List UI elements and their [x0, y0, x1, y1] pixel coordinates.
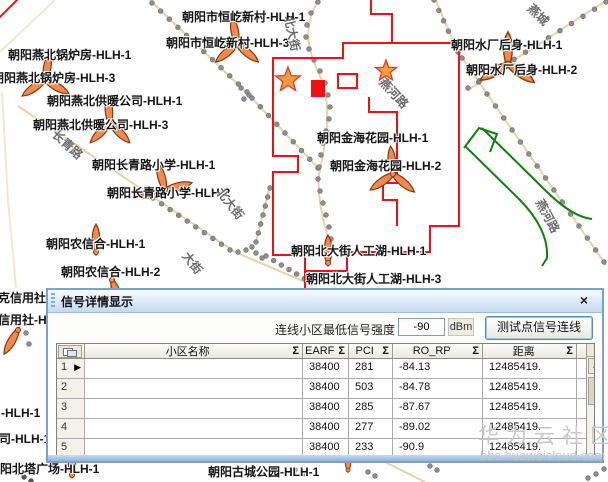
- dialog-resize-edge[interactable]: [48, 455, 602, 461]
- min-signal-input[interactable]: [398, 318, 445, 336]
- scrollbar-corner: [587, 344, 595, 357]
- table-scrollbar[interactable]: ▲: [586, 344, 595, 456]
- col-header-earf[interactable]: EARFΣ: [303, 344, 349, 358]
- dbm-unit-label: dBm: [448, 318, 474, 336]
- sigma-filter-icon[interactable]: Σ: [566, 345, 573, 357]
- signal-detail-dialog: 信号详情显示 × 连线小区最低信号强度 dBm 测试点信号连线 小区名称Σ EA…: [46, 288, 604, 463]
- sigma-filter-icon[interactable]: Σ: [338, 345, 345, 357]
- min-signal-label: 连线小区最低信号强度: [275, 321, 395, 338]
- scroll-up-icon[interactable]: ▲: [588, 358, 595, 374]
- antenna-site-marker[interactable]: [478, 32, 537, 86]
- table-row[interactable]: 2 38400 503 -84.78 12485419.: [57, 379, 594, 399]
- table-row[interactable]: 3 38400 285 -87.67 12485419.: [57, 399, 594, 419]
- antenna-site-marker[interactable]: [88, 95, 133, 146]
- col-header-name[interactable]: 小区名称Σ: [85, 344, 303, 358]
- table-header: 小区名称Σ EARFΣ PCIΣ RO_RPΣ 距离Σ: [57, 344, 594, 359]
- drag-grip-icon[interactable]: [51, 293, 55, 309]
- antenna-site-marker[interactable]: [1, 326, 23, 357]
- signal-table: 小区名称Σ EARFΣ PCIΣ RO_RPΣ 距离Σ 1▶ 38400 281…: [56, 343, 595, 457]
- dialog-titlebar[interactable]: 信号详情显示 ×: [48, 290, 602, 313]
- antenna-site-marker[interactable]: [213, 16, 261, 65]
- current-row-arrow-icon: ▶: [74, 362, 81, 373]
- antenna-site-marker[interactable]: [324, 235, 332, 266]
- test-point-connect-button[interactable]: 测试点信号连线: [485, 316, 593, 340]
- sigma-filter-icon[interactable]: Σ: [382, 345, 389, 357]
- table-row[interactable]: 4 38400 277 -89.02 12485419.: [57, 419, 594, 439]
- row-selector-icon[interactable]: [58, 345, 82, 358]
- close-icon[interactable]: ×: [580, 292, 588, 308]
- sigma-filter-icon[interactable]: Σ: [472, 345, 479, 357]
- antenna-site-marker[interactable]: [368, 146, 417, 195]
- dialog-toolbar: 连线小区最低信号强度 dBm 测试点信号连线: [48, 313, 602, 343]
- dialog-title: 信号详情显示: [61, 293, 133, 310]
- antenna-site-marker[interactable]: [92, 224, 100, 255]
- antenna-site-marker[interactable]: [137, 162, 193, 201]
- app-window: 朝阳市恒屹新村-HLH-1朝阳市恒屹新村-HLH-3朝阳燕北锅炉房-HLH-1朝…: [0, 0, 608, 482]
- sigma-filter-icon[interactable]: Σ: [292, 345, 299, 357]
- col-header-rorp[interactable]: RO_RPΣ: [393, 344, 483, 358]
- table-row[interactable]: 1▶ 38400 281 -84.13 12485419.: [57, 359, 594, 379]
- col-header-pci[interactable]: PCIΣ: [349, 344, 393, 358]
- col-header-distance[interactable]: 距离Σ: [483, 344, 577, 358]
- star-marker: [276, 67, 301, 91]
- star-marker: [376, 60, 397, 80]
- scrollbar-thumb[interactable]: [588, 377, 595, 405]
- corner-select-cell[interactable]: [57, 344, 85, 358]
- antenna-site-marker[interactable]: [20, 52, 71, 99]
